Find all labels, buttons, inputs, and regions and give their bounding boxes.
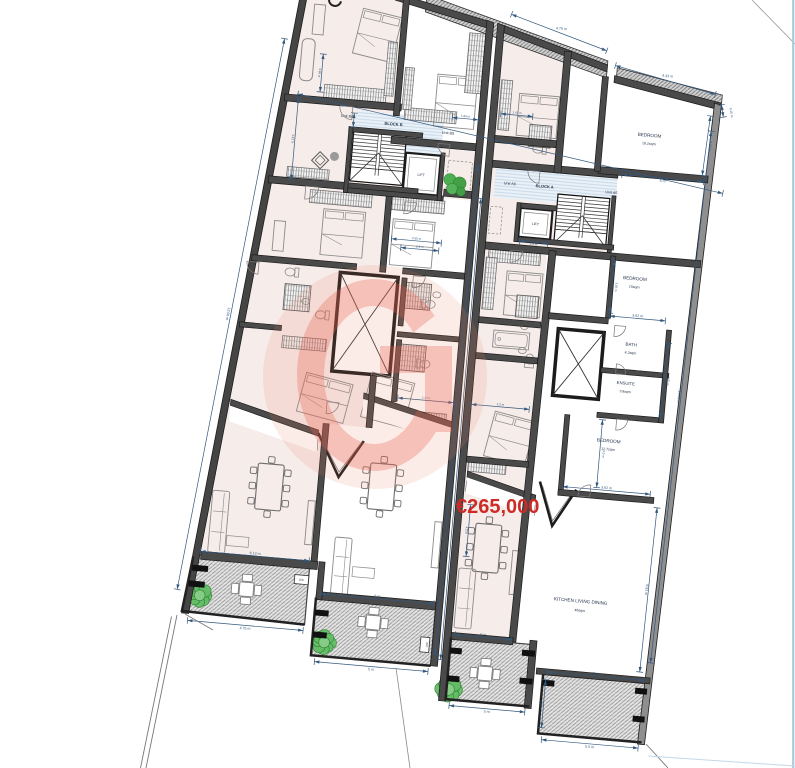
svg-text:4.2 m: 4.2 m (464, 526, 469, 534)
svg-text:5 m: 5 m (659, 179, 665, 184)
svg-text:3.65 m: 3.65 m (614, 282, 619, 292)
svg-text:1.47 m: 1.47 m (512, 110, 522, 115)
svg-text:5 m: 5 m (484, 710, 490, 715)
svg-text:3.41 m: 3.41 m (290, 134, 295, 144)
svg-text:1.4 m: 1.4 m (530, 242, 538, 247)
svg-text:5 m: 5 m (593, 671, 599, 676)
svg-text:2.55 m: 2.55 m (412, 236, 422, 241)
svg-text:LIFT: LIFT (531, 222, 540, 227)
svg-text:1.2 m: 1.2 m (497, 402, 505, 407)
svg-text:3.96 m: 3.96 m (317, 68, 322, 78)
svg-text:5 m: 5 m (480, 632, 486, 637)
svg-text:LIFT: LIFT (417, 173, 426, 178)
svg-text:2 m: 2 m (539, 700, 544, 706)
svg-text:0.15 m: 0.15 m (729, 107, 735, 118)
svg-text:4.75 m: 4.75 m (239, 626, 250, 631)
svg-text:5 m: 5 m (374, 594, 380, 599)
svg-text:1.84 m: 1.84 m (461, 114, 471, 119)
svg-text:5.5 m: 5.5 m (585, 745, 594, 750)
svg-text:BATH: BATH (625, 342, 637, 348)
svg-text:€265,000: €265,000 (456, 496, 539, 518)
svg-text:2.5 m: 2.5 m (416, 244, 424, 249)
svg-text:4.75 m: 4.75 m (556, 26, 567, 31)
svg-text:3.5 m: 3.5 m (601, 450, 606, 458)
svg-text:4.33 m: 4.33 m (662, 74, 673, 79)
svg-text:5 m: 5 m (368, 667, 374, 672)
